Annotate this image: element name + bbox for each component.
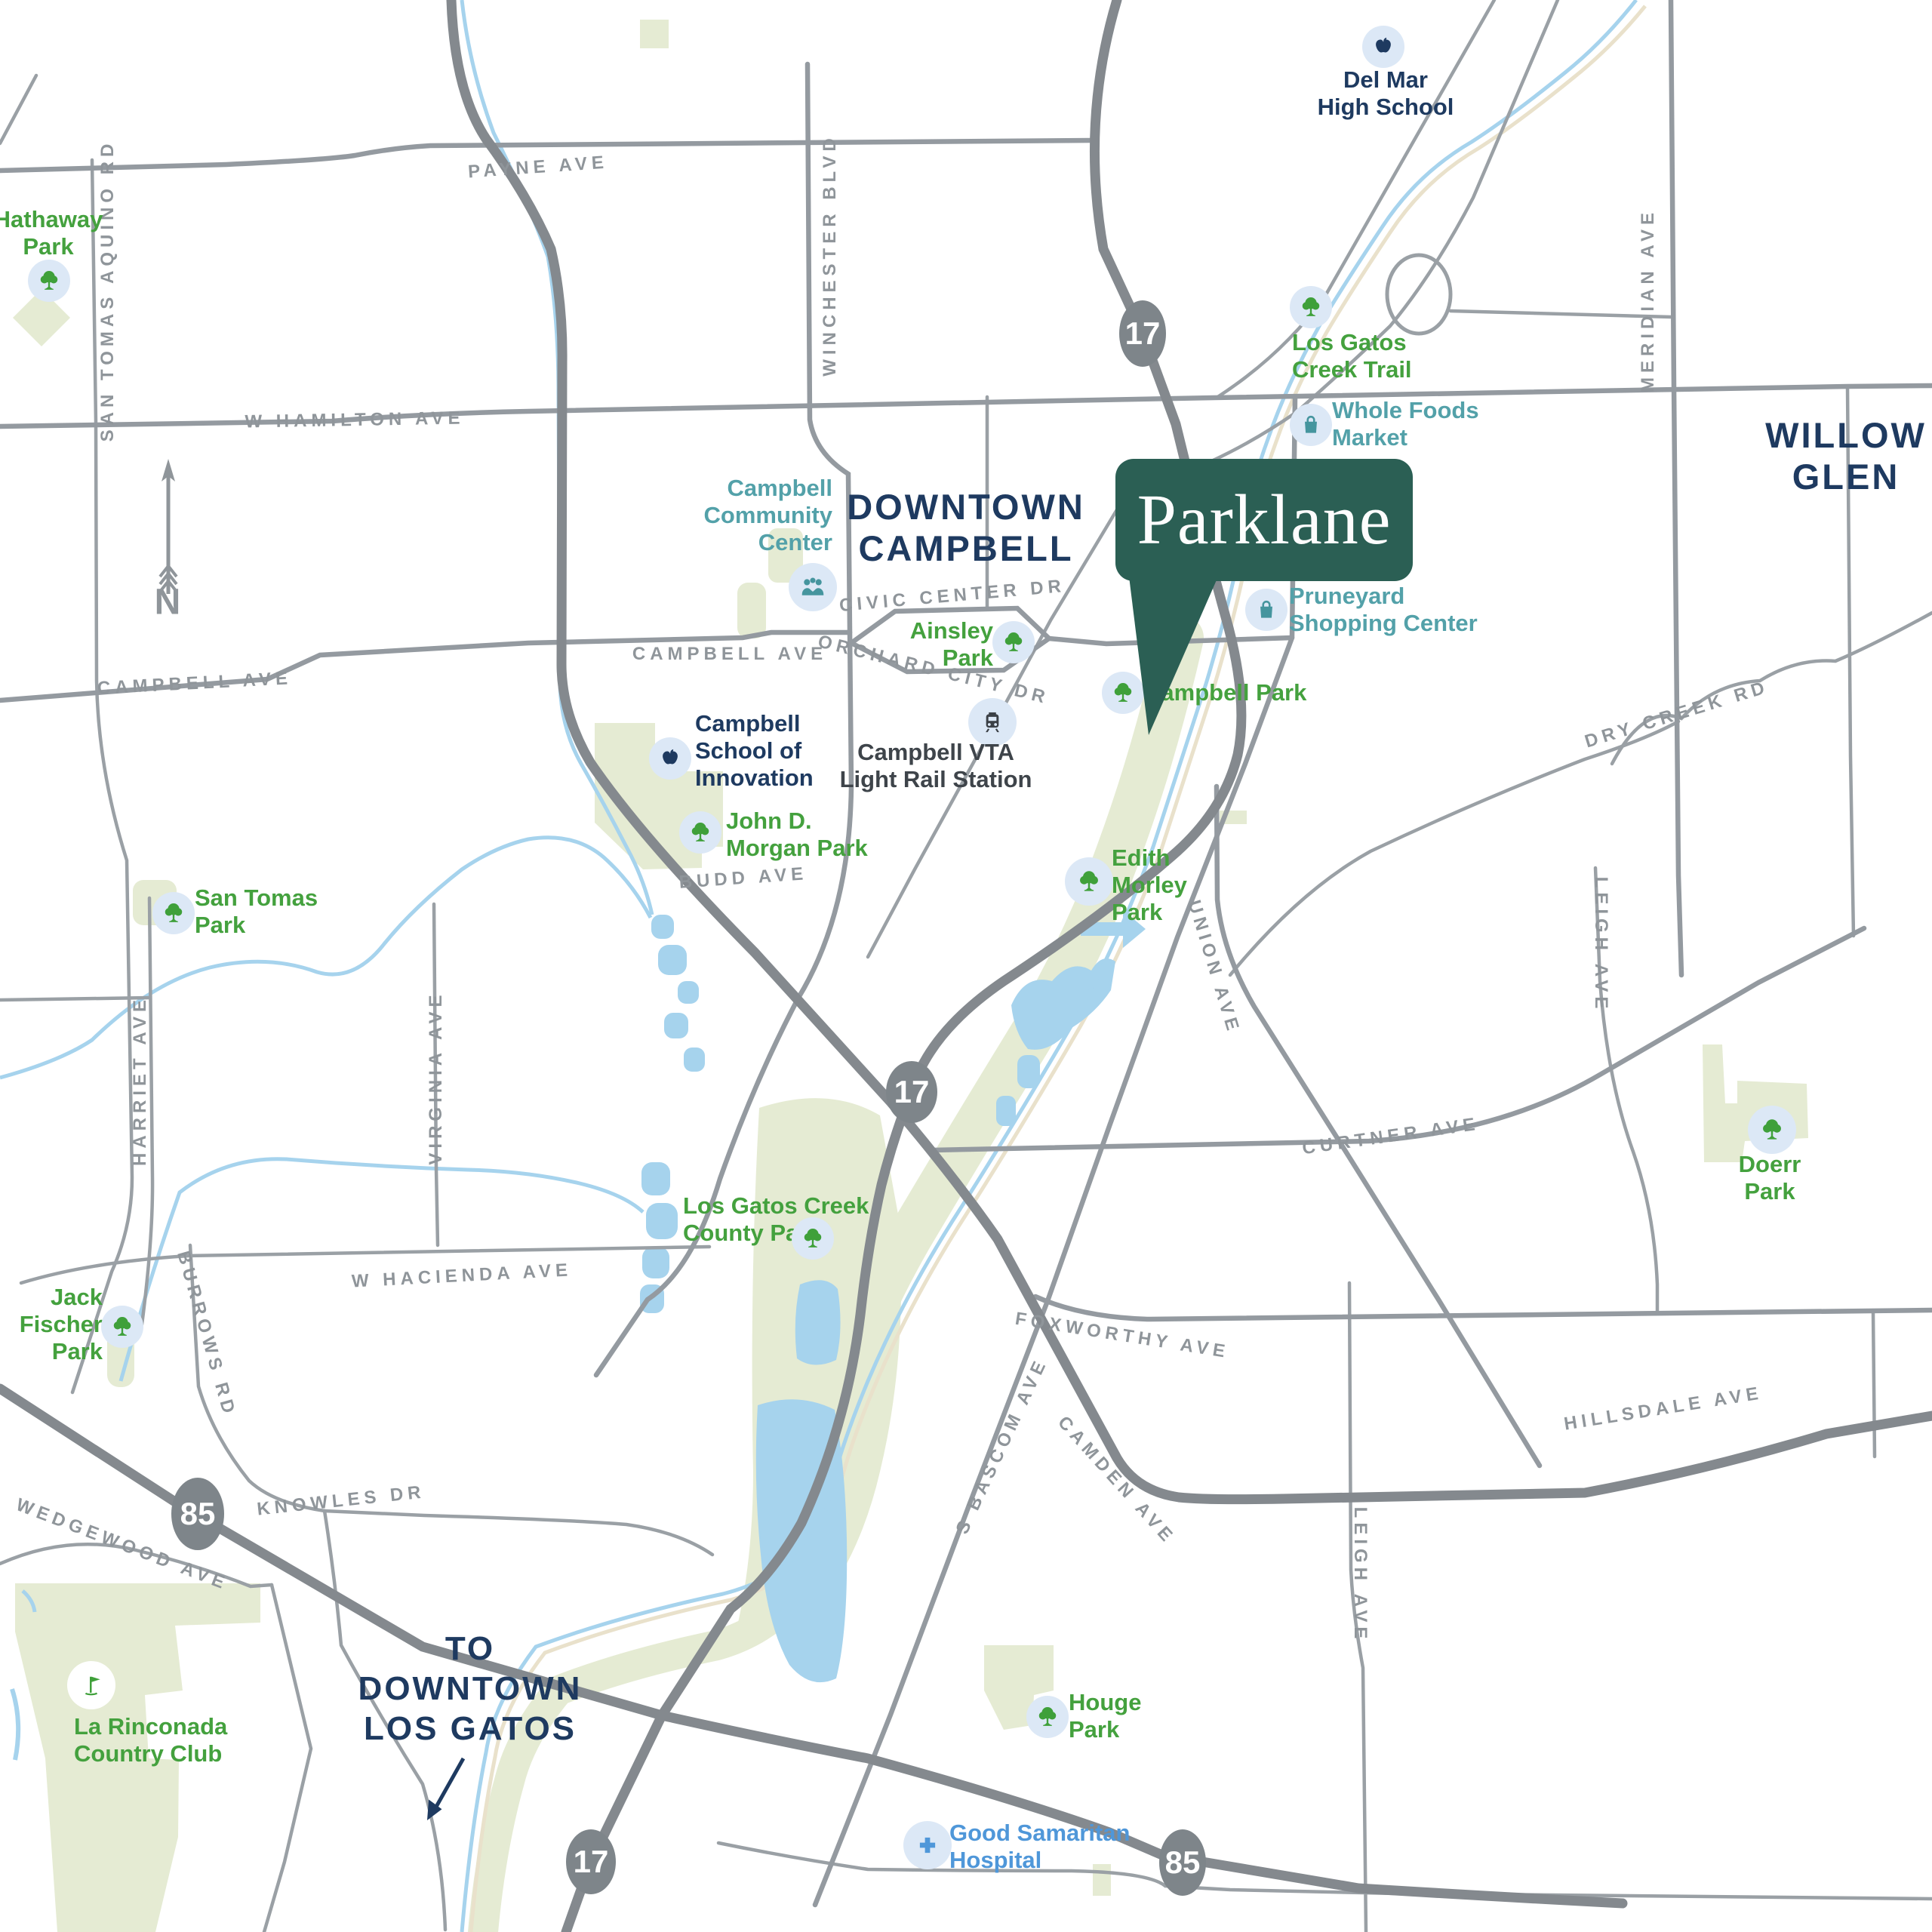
poi-campbell-school-of-innovation: Campbell School of Innovation: [695, 710, 814, 792]
road-label-winchester-blvd: WINCHESTER BLVD: [820, 134, 841, 377]
highway-17-shield-north: 17: [1119, 300, 1166, 367]
area-label-downtown-campbell: DOWNTOWN CAMPBELL: [847, 487, 1085, 570]
road-label-campbell-ave-east: CAMPBELL AVE: [632, 644, 827, 665]
apple-icon: [1362, 26, 1404, 68]
highway-17-shield-south: 17: [566, 1829, 616, 1894]
poi-good-samaritan-hospital: Good Samaritan Hospital: [949, 1820, 1130, 1874]
tree-icon: [1290, 286, 1332, 328]
poi-del-mar-high-school: Del Mar High School: [1318, 66, 1454, 121]
area-label-willow-glen: WILLOW GLEN: [1765, 415, 1927, 498]
road-label-virginia-ave: VIRGINIA AVE: [426, 990, 447, 1164]
tree-icon: [101, 1306, 143, 1348]
poi-los-gatos-creek-county-park: Los Gatos Creek County Park: [683, 1192, 869, 1247]
road-label-w-hamilton-ave: W HAMILTON AVE: [245, 408, 465, 432]
poi-jack-fischer-park: Jack Fischer Park: [20, 1284, 103, 1365]
golf-flag-icon: [67, 1661, 115, 1709]
poi-san-tomas-park: San Tomas Park: [195, 884, 318, 939]
medical-cross-icon: [903, 1821, 952, 1869]
road-label-leigh-ave-north: LEIGH AVE: [1590, 877, 1611, 1014]
parklane-area-map: PAYNE AVE SAN TOMAS AQUINO RD W HAMILTON…: [0, 0, 1932, 1932]
poi-whole-foods-market: Whole Foods Market: [1332, 397, 1479, 451]
poi-edith-morley-park: Edith Morley Park: [1112, 844, 1187, 926]
parklane-brand-label: Parklane: [1137, 479, 1392, 561]
park-areas: [13, 20, 1808, 1932]
poi-pruneyard-shopping-center: Pruneyard Shopping Center: [1289, 583, 1478, 637]
people-icon: [789, 563, 837, 611]
compass-north-label: N: [155, 582, 181, 623]
tree-icon: [152, 892, 195, 934]
tree-icon: [992, 621, 1035, 663]
tree-icon: [792, 1217, 834, 1260]
road-label-san-tomas-aquino-rd: SAN TOMAS AQUINO RD: [97, 140, 118, 442]
poi-john-d-morgan-park: John D. Morgan Park: [726, 808, 868, 862]
poi-la-rinconada-country-club: La Rinconada Country Club: [74, 1713, 227, 1767]
poi-campbell-vta-light-rail-station: Campbell VTA Light Rail Station: [840, 739, 1032, 793]
tree-icon: [28, 260, 70, 302]
poi-doerr-park: Doerr Park: [1739, 1151, 1801, 1205]
highway-85-shield-west: 85: [171, 1478, 224, 1550]
shopping-bag-icon: [1290, 404, 1332, 446]
parklane-callout-tail: [1123, 577, 1229, 739]
tree-icon: [1065, 857, 1113, 906]
road-label-leigh-ave-south: LEIGH AVE: [1349, 1507, 1371, 1644]
tree-icon: [1748, 1106, 1796, 1154]
shopping-bag-icon: [1245, 589, 1287, 631]
highway-17-shield-mid: 17: [886, 1061, 937, 1123]
poi-ainsley-park: Ainsley Park: [910, 617, 993, 672]
road-label-meridian-ave: MERIDIAN AVE: [1638, 208, 1659, 392]
poi-campbell-community-center: Campbell Community Center: [704, 475, 833, 556]
area-label-to-downtown-los-gatos: TO DOWNTOWN LOS GATOS: [358, 1629, 583, 1749]
road-label-harriet-ave: HARRIET AVE: [130, 995, 151, 1166]
poi-hathaway-park: Hathaway Park: [0, 206, 103, 260]
poi-houge-park: Houge Park: [1069, 1689, 1141, 1743]
tree-icon: [1026, 1696, 1069, 1738]
down-left-arrow-icon: [417, 1752, 485, 1835]
apple-icon: [649, 737, 691, 780]
highway-85-shield-east: 85: [1159, 1829, 1206, 1896]
tree-icon: [679, 811, 721, 854]
poi-los-gatos-creek-trail: Los Gatos Creek Trail: [1292, 329, 1412, 383]
parklane-callout: Parklane: [1115, 459, 1413, 581]
